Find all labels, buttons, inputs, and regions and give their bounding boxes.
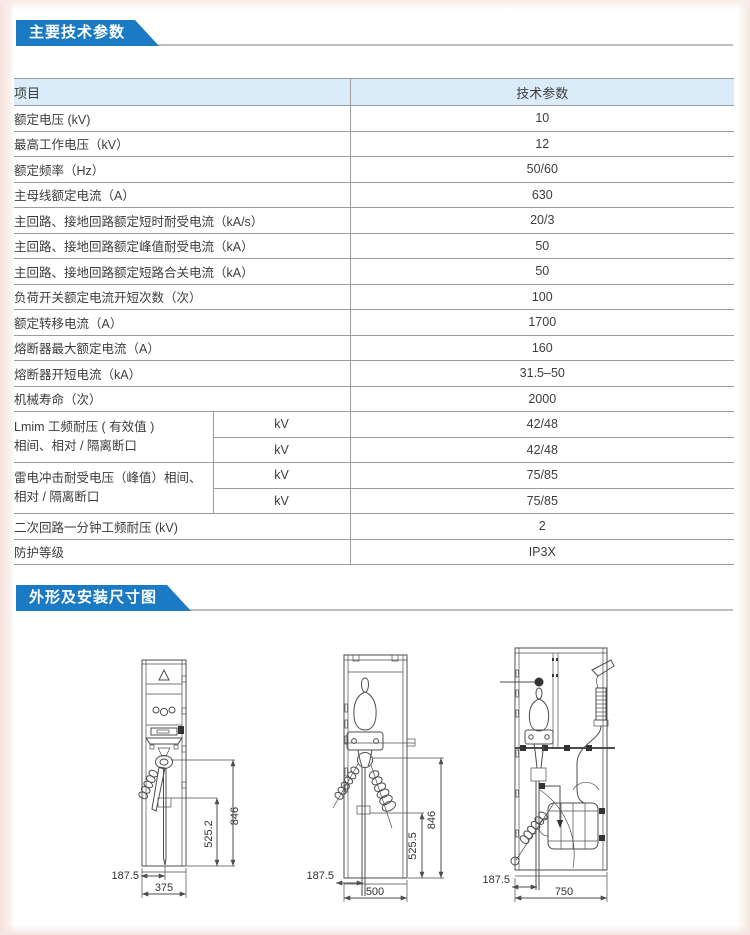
spring-coil-left xyxy=(334,766,361,801)
table-row: 主回路、接地回路额定峰值耐受电流（kA）50 xyxy=(14,233,734,259)
table-row-merged: Lmim 工频耐压 ( 有效值 ) 相间、相对 / 隔离断口 kV 42/48 xyxy=(14,412,734,438)
page-edge-left xyxy=(0,0,13,935)
table-row: 主母线额定电流（A）630 xyxy=(14,182,734,208)
dim-inner-height: 525.2 xyxy=(203,820,215,848)
dim-total-height: 846 xyxy=(229,807,241,825)
row-label: 额定电压 (kV) xyxy=(14,106,350,132)
row-value: 50/60 xyxy=(350,157,734,183)
table-row: 额定频率（Hz）50/60 xyxy=(14,157,734,183)
row-value: 10 xyxy=(350,106,734,132)
row-label: 机械寿命（次） xyxy=(14,386,350,412)
page-edge-bottom xyxy=(0,925,750,935)
row-value: 50 xyxy=(350,259,734,285)
table-row: 最高工作电压（kV）12 xyxy=(14,131,734,157)
drawing-side-view-750: 187.5 750 xyxy=(480,640,695,915)
page-edge-top xyxy=(0,0,750,10)
latch-block xyxy=(178,726,184,734)
dim-offset: 187.5 xyxy=(111,870,139,882)
insulator-bulb xyxy=(529,699,548,731)
table-row: 二次回路一分钟工频耐压 (kV)2 xyxy=(14,514,734,540)
catalog-page: 主要技术参数 项目 技术参数 额定电压 (kV)10 最高工作电压（kV）12 … xyxy=(0,0,750,935)
col-header-item: 项目 xyxy=(14,79,350,106)
table-row: 主回路、接地回路额定短时耐受电流（kA/s）20/3 xyxy=(14,208,734,234)
table-row: 负荷开关额定电流开短次数（次）100 xyxy=(14,284,734,310)
row-label: 主母线额定电流（A） xyxy=(14,182,350,208)
table-row: 主回路、接地回路额定短路合关电流（kA）50 xyxy=(14,259,734,285)
page-edge-right xyxy=(738,0,750,935)
merged-label-line2: 相对 / 隔离断口 xyxy=(14,488,213,507)
row-label: 熔断器开短电流（kA） xyxy=(14,361,350,387)
unit-cell: kV xyxy=(213,437,350,463)
row-label: 主回路、接地回路额定峰值耐受电流（kA） xyxy=(14,233,350,259)
col-header-value: 技术参数 xyxy=(350,79,734,106)
row-label: 防护等级 xyxy=(14,539,350,565)
table-row: 额定电压 (kV)10 xyxy=(14,106,734,132)
dim-inner-height: 525.5 xyxy=(407,832,419,860)
unit-cell: kV xyxy=(213,412,350,438)
row-label: 额定转移电流（A） xyxy=(14,310,350,336)
warning-triangle-icon xyxy=(159,670,169,680)
row-label: 额定频率（Hz） xyxy=(14,157,350,183)
row-value: 12 xyxy=(350,131,734,157)
arrow-down xyxy=(557,820,563,828)
section1-title-banner: 主要技术参数 xyxy=(16,20,159,46)
unit-cell: kV xyxy=(213,488,350,514)
dim-width: 500 xyxy=(366,886,384,898)
row-value: 20/3 xyxy=(350,208,734,234)
table-header-row: 项目 技术参数 xyxy=(14,79,734,106)
dim-offset: 187.5 xyxy=(482,874,510,886)
insulator-pin xyxy=(536,688,542,699)
merged-label-line1: 雷电冲击耐受电压（峰值）相间、 xyxy=(14,469,213,488)
operating-hub xyxy=(156,756,173,769)
row-value: IP3X xyxy=(350,539,734,565)
dim-total-height: 846 xyxy=(426,811,438,829)
row-label: 熔断器最大额定电流（A） xyxy=(14,335,350,361)
table-row: 机械寿命（次）2000 xyxy=(14,386,734,412)
row-label: 负荷开关额定电流开短次数（次） xyxy=(14,284,350,310)
table-row: 额定转移电流（A）1700 xyxy=(14,310,734,336)
table-row-merged: 雷电冲击耐受电压（峰值）相间、 相对 / 隔离断口 kV 75/85 xyxy=(14,463,734,489)
dim-width: 375 xyxy=(155,882,173,894)
row-value: 75/85 xyxy=(350,488,734,514)
row-label: 主回路、接地回路额定短时耐受电流（kA/s） xyxy=(14,208,350,234)
insulator-bulb xyxy=(354,692,376,730)
cable-curve xyxy=(577,726,601,803)
table-row: 熔断器开短电流（kA）31.5–50 xyxy=(14,361,734,387)
merged-row-label: 雷电冲击耐受电压（峰值）相间、 相对 / 隔离断口 xyxy=(14,463,213,514)
row-value: 75/85 xyxy=(350,463,734,489)
insulator-pin xyxy=(362,678,369,692)
merged-label-line1: Lmim 工频耐压 ( 有效值 ) xyxy=(14,418,213,437)
merged-label-line2: 相间、相对 / 隔离断口 xyxy=(14,437,213,456)
table-row: 熔断器最大额定电流（A）160 xyxy=(14,335,734,361)
row-value: 2 xyxy=(350,514,734,540)
row-value: 31.5–50 xyxy=(350,361,734,387)
contact-dot xyxy=(535,678,544,687)
row-value: 2000 xyxy=(350,386,734,412)
spring-coil-right xyxy=(366,768,397,813)
row-value: 630 xyxy=(350,182,734,208)
merged-row-label: Lmim 工频耐压 ( 有效值 ) 相间、相对 / 隔离断口 xyxy=(14,412,213,463)
drawing-side-view-500: 846 525.5 187.5 500 xyxy=(300,648,460,913)
spring-coil xyxy=(519,810,549,845)
row-value: 42/48 xyxy=(350,437,734,463)
row-label: 主回路、接地回路额定短路合关电流（kA） xyxy=(14,259,350,285)
spec-table: 项目 技术参数 额定电压 (kV)10 最高工作电压（kV）12 额定频率（Hz… xyxy=(14,78,734,565)
row-value: 100 xyxy=(350,284,734,310)
dim-offset: 187.5 xyxy=(306,870,334,882)
row-label: 二次回路一分钟工频耐压 (kV) xyxy=(14,514,350,540)
row-value: 160 xyxy=(350,335,734,361)
section2-title-banner: 外形及安装尺寸图 xyxy=(16,585,191,611)
door-swing-arc xyxy=(540,790,574,868)
dim-width: 750 xyxy=(555,886,573,898)
unit-cell: kV xyxy=(213,463,350,489)
row-value: 42/48 xyxy=(350,412,734,438)
row-value: 50 xyxy=(350,233,734,259)
row-label: 最高工作电压（kV） xyxy=(14,131,350,157)
row-value: 1700 xyxy=(350,310,734,336)
drawing-front-view-375: 846 525.2 187.5 375 xyxy=(105,650,255,910)
table-row: 防护等级IP3X xyxy=(14,539,734,565)
